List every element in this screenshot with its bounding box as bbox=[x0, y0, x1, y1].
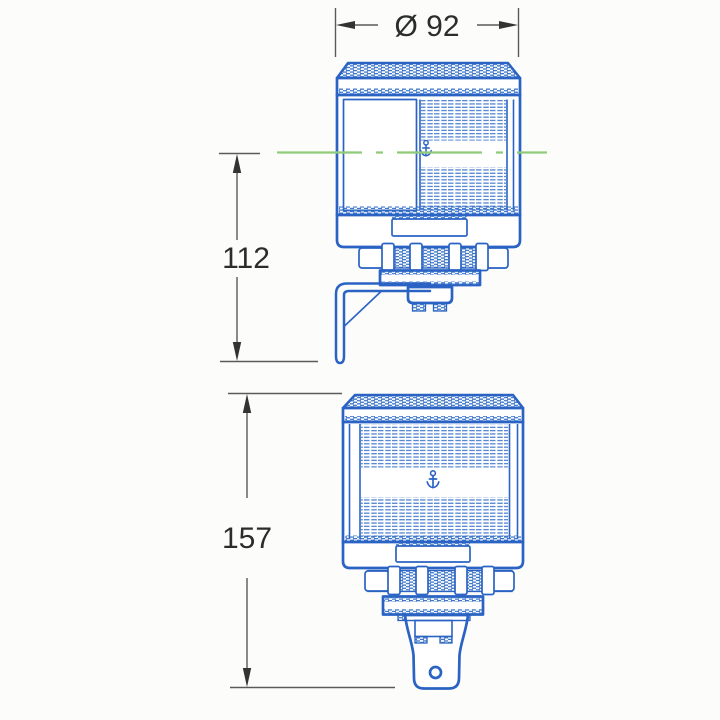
collar-rib bbox=[410, 244, 422, 271]
cap-band-texture bbox=[345, 416, 521, 421]
diameter-label: Ø 92 bbox=[394, 10, 459, 43]
connector-block bbox=[408, 287, 452, 303]
lens-ridges-upper bbox=[421, 100, 506, 141]
collar-end-left bbox=[359, 248, 383, 268]
connector-foot-right bbox=[434, 303, 447, 311]
arrowhead-up-icon bbox=[233, 154, 241, 173]
body-bottom-texture bbox=[345, 536, 521, 542]
front-height-label: 157 bbox=[222, 522, 272, 555]
collar-rib bbox=[455, 567, 467, 595]
step-texture-top bbox=[384, 597, 482, 602]
step-texture-bottom bbox=[384, 609, 482, 614]
arrowhead-left-icon bbox=[336, 21, 355, 29]
collar-rib bbox=[482, 567, 494, 595]
navigation-light-drawing: Ø 92 bbox=[0, 0, 720, 720]
collar-rib bbox=[388, 567, 400, 595]
cap-band-texture bbox=[339, 89, 518, 94]
side-height-label: 112 bbox=[222, 242, 270, 275]
step-texture-top bbox=[381, 271, 479, 275]
mounting-hole bbox=[430, 667, 441, 678]
bracket-gusset-line bbox=[345, 292, 382, 327]
bottom-lamp-front-view bbox=[343, 395, 523, 689]
collar-end-left bbox=[365, 571, 389, 591]
nameplate bbox=[396, 546, 470, 562]
collar-rib bbox=[416, 567, 428, 595]
side-height-dimension: 112 bbox=[219, 154, 318, 362]
body-bottom-texture bbox=[339, 207, 518, 214]
connector-foot-left bbox=[413, 303, 426, 311]
stem-inner-tab-right bbox=[440, 637, 452, 644]
lamp-cap bbox=[343, 395, 523, 408]
arrowhead-down-icon bbox=[233, 342, 241, 361]
arrowhead-down-icon bbox=[243, 668, 251, 687]
lens-ridges-lower bbox=[421, 167, 506, 211]
top-lamp-side-view bbox=[336, 63, 520, 363]
collar-rib bbox=[449, 244, 461, 271]
technical-drawing-page: Ø 92 bbox=[0, 0, 720, 720]
arrowhead-right-icon bbox=[499, 21, 518, 29]
lens-ridges-upper bbox=[361, 425, 508, 468]
arrowhead-up-icon bbox=[243, 394, 251, 413]
housing-panel bbox=[344, 100, 417, 211]
stem-inner-tab-left bbox=[415, 637, 427, 644]
lamp-cap bbox=[337, 63, 520, 78]
diameter-dimension: Ø 92 bbox=[336, 8, 519, 57]
nameplate bbox=[392, 219, 467, 236]
collar-rib bbox=[382, 244, 394, 271]
lens-ridges-lower bbox=[361, 497, 508, 539]
collar-rib bbox=[476, 244, 488, 271]
